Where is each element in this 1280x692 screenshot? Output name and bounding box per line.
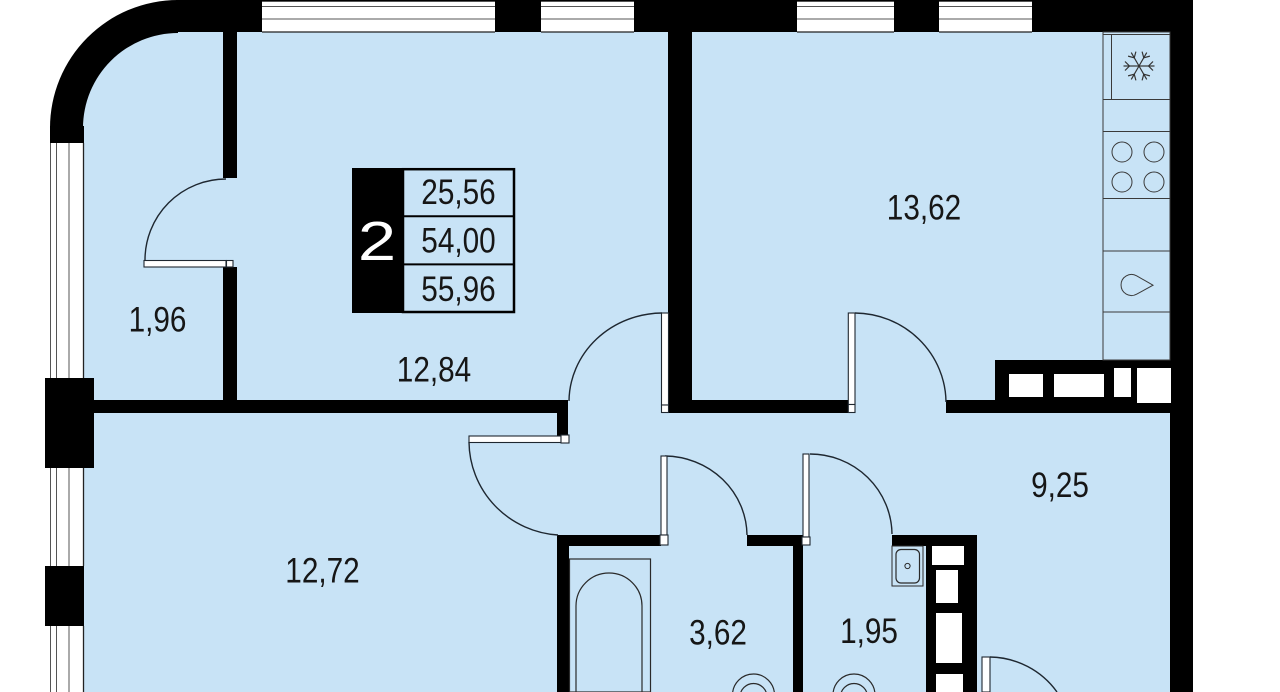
svg-text:54,00: 54,00 bbox=[421, 221, 495, 260]
svg-text:12,84: 12,84 bbox=[397, 350, 471, 389]
svg-text:13,62: 13,62 bbox=[887, 188, 961, 227]
svg-text:1,96: 1,96 bbox=[129, 300, 187, 339]
svg-text:55,96: 55,96 bbox=[421, 270, 495, 309]
svg-text:1,95: 1,95 bbox=[840, 612, 898, 651]
svg-text:12,72: 12,72 bbox=[285, 551, 359, 590]
svg-text:3,62: 3,62 bbox=[689, 613, 747, 652]
svg-text:9,25: 9,25 bbox=[1031, 466, 1089, 505]
svg-text:25,56: 25,56 bbox=[421, 173, 495, 212]
svg-text:2: 2 bbox=[358, 211, 396, 272]
